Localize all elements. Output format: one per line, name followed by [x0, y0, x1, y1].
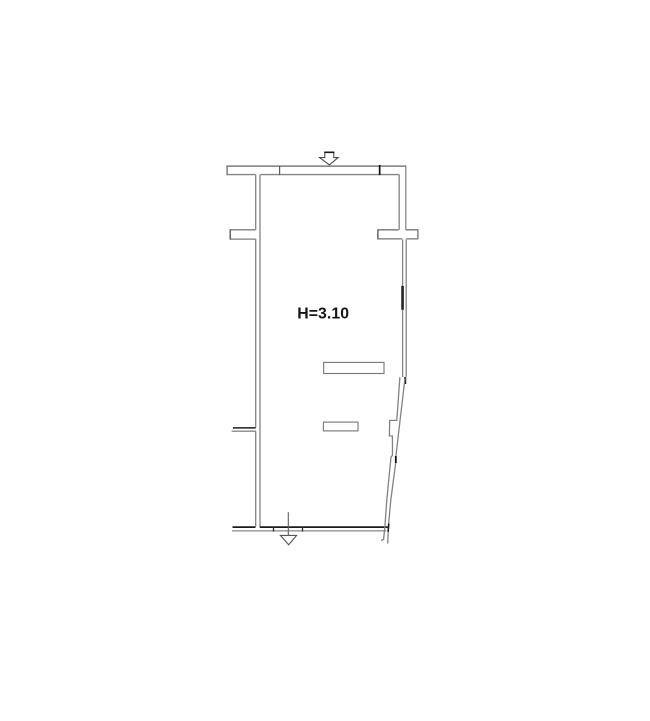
svg-text:H=3.10: H=3.10 [297, 306, 349, 323]
